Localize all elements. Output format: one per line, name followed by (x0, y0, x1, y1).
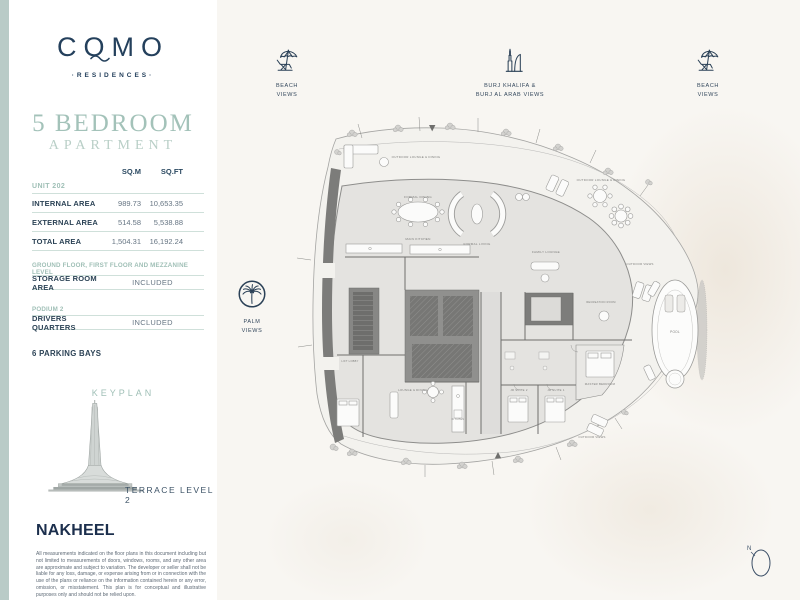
corridor (481, 292, 501, 434)
lift-core (405, 290, 479, 382)
unit-number: UNIT 202 (32, 179, 204, 194)
room-label: RECREATION ROOM (586, 300, 615, 304)
table-row: TOTAL AREA 1,504.31 16,192.24 (32, 232, 204, 251)
parking-bays: 6 PARKING BAYS (32, 342, 204, 364)
drivers-row: DRIVERS QUARTERS INCLUDED (32, 316, 204, 330)
palm-tree-icon (235, 278, 269, 312)
room-label: FORMAL DINING (404, 195, 432, 199)
room-label: OUTDOOR LOUNGE & DINING (392, 155, 441, 159)
room-label: JR SUITE 1 (547, 388, 564, 392)
info-panel: COMO ·RESIDENCES· 5 BEDROOM APARTMENT SQ… (9, 0, 217, 600)
terrace-level-label: TERRACE LEVEL 2 (125, 485, 217, 505)
beach-views-left: BEACH VIEWS (242, 48, 332, 100)
suite-core (525, 293, 573, 325)
col-sqm: SQ.M (101, 167, 141, 176)
room-label: JR SUITE 2 (510, 388, 527, 392)
table-row: EXTERNAL AREA 514.58 5,538.88 (32, 213, 204, 232)
page-title: 5 BEDROOM (9, 110, 217, 138)
palm-views: PALM VIEWS (217, 278, 297, 336)
room-label: LIFT LOBBY (341, 359, 358, 363)
room-label: MASTER BEDROOM (585, 382, 616, 386)
table-header: SQ.M SQ.FT (32, 164, 204, 179)
brand-residences: ·RESIDENCES· (9, 72, 217, 79)
disclaimer-text: All measurements indicated on the floor … (36, 551, 206, 598)
burj-khalifa-icon (495, 46, 525, 76)
brand-name: COMO (57, 32, 169, 62)
room-label: OUTDOOR VIEWS (626, 262, 653, 266)
stair-core (349, 288, 379, 354)
north-indicator: N (740, 538, 776, 582)
como-logo: COMO (9, 28, 217, 75)
beach-umbrella-icon (272, 48, 302, 76)
room-label: LOUNGE & DINING (398, 388, 428, 392)
brochure-page: COMO ·RESIDENCES· 5 BEDROOM APARTMENT SQ… (0, 0, 800, 600)
accent-strip (0, 0, 9, 600)
keyplan-label: KEYPLAN (29, 388, 217, 398)
floor-plan: OUTDOOR LOUNGE & DINING OUTDOOR LOUNGE &… (293, 107, 713, 477)
room-label: OUTDOOR VIEWS (578, 435, 605, 439)
burj-views-label: BURJ KHALIFA & (465, 82, 555, 91)
table-row: INTERNAL AREA 989.73 10,653.35 (32, 194, 204, 213)
page-subtitle: APARTMENT (9, 138, 217, 154)
beach-views-right: BEACH VIEWS (663, 48, 753, 100)
beach-umbrella-icon (693, 48, 723, 76)
north-label: N (747, 546, 751, 552)
palm-views-label: PALM (217, 318, 297, 327)
storage-row: STORAGE ROOM AREA INCLUDED (32, 276, 204, 290)
area-table: SQ.M SQ.FT UNIT 202 INTERNAL AREA 989.73… (32, 164, 204, 364)
room-label: MAIN KITCHEN (405, 237, 430, 241)
room-label: FORMAL LIVING (463, 242, 490, 246)
plan-area: BEACH VIEWS BURJ KHALIFA & BURJ AL ARAB … (217, 0, 800, 600)
room-label: OUTDOOR LOUNGE & DINING (577, 178, 626, 182)
room-label: KITCHEN (452, 418, 465, 421)
beach-views-label: BEACH (663, 82, 753, 91)
room-label: FAMILY LOUNGE (532, 250, 560, 254)
keyplan-tower-icon (41, 400, 151, 492)
burj-views: BURJ KHALIFA & BURJ AL ARAB VIEWS (465, 46, 555, 100)
pool-label: POOL (670, 330, 680, 334)
nakheel-logo: NAKHEEL (36, 522, 115, 540)
col-sqft: SQ.FT (141, 167, 183, 176)
beach-views-label: BEACH (242, 82, 332, 91)
